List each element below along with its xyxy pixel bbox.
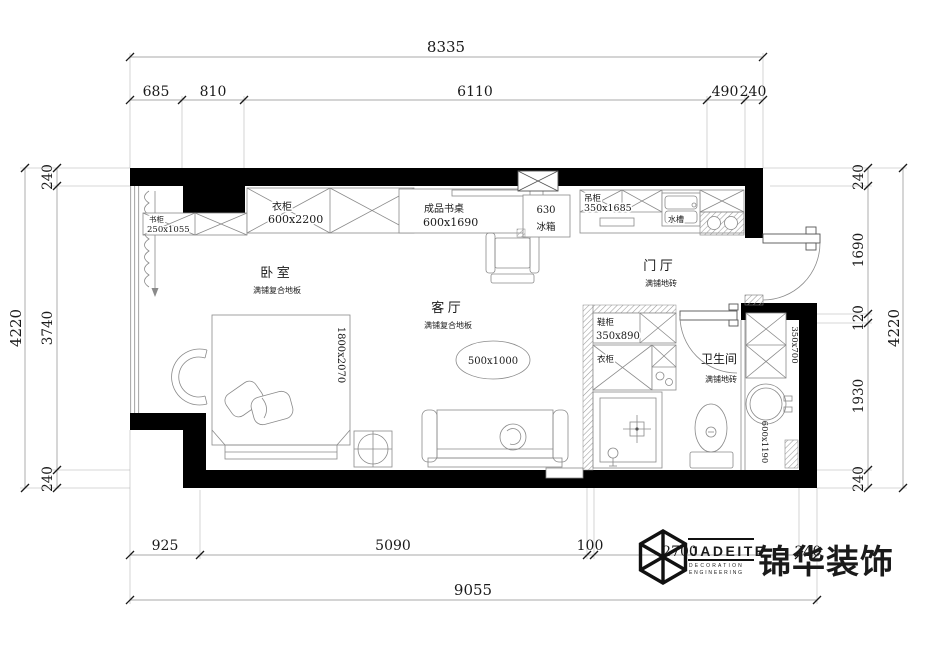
pillows bbox=[222, 378, 295, 427]
dim-right-total: 4220 bbox=[885, 309, 903, 347]
dim-left-3740: 3740 bbox=[40, 311, 56, 345]
partition-hatch bbox=[583, 305, 593, 470]
foyer-floor: 满铺地砖 bbox=[645, 278, 677, 288]
coffee-table-size: 500x1000 bbox=[468, 356, 518, 367]
dim-top-240: 240 bbox=[740, 84, 767, 100]
armchair bbox=[172, 349, 207, 405]
partition-hatch-top bbox=[593, 305, 676, 313]
fridge-label: 冰箱 bbox=[536, 221, 555, 233]
laundry-unit bbox=[652, 345, 676, 390]
curtain-arrow bbox=[152, 288, 159, 297]
dimension-bottom: 925 5090 100 2700 240 9055 bbox=[126, 430, 821, 604]
dim-top-490: 490 bbox=[712, 84, 739, 100]
logo-company: 锦华装饰 bbox=[758, 543, 894, 580]
living-room-floor: 满铺复合地板 bbox=[424, 320, 472, 330]
shower bbox=[593, 392, 662, 468]
dimension-top: 8335 685 810 6110 490 240 bbox=[126, 38, 767, 168]
shoe-cabinet-label: 鞋柜 bbox=[597, 317, 615, 327]
dim-bottom-100: 100 bbox=[577, 538, 604, 554]
bathroom-floor: 满铺地砖 bbox=[705, 374, 737, 384]
dim-bottom-925: 925 bbox=[152, 538, 179, 554]
foyer-wardrobe: 衣柜 bbox=[593, 345, 652, 390]
kitchen-counter: 吊柜 350x1685 水槽 bbox=[580, 190, 744, 235]
logo-line2: ENGINEERING bbox=[689, 570, 744, 576]
curtain-symbol bbox=[145, 191, 150, 287]
fridge: 630 冰箱 bbox=[517, 195, 570, 237]
bath-cabinet: 350x700 bbox=[746, 313, 799, 378]
foyer-title: 门 厅 bbox=[643, 258, 673, 273]
bed: 1800x2070 bbox=[212, 315, 350, 459]
logo-brand: JADEITE bbox=[690, 543, 767, 559]
desk-chair bbox=[486, 233, 539, 283]
kitchen-sink-label: 水槽 bbox=[668, 214, 684, 224]
dim-left-240b: 240 bbox=[40, 466, 56, 492]
bath-small-cabinet bbox=[785, 440, 798, 468]
dim-top-total: 8335 bbox=[427, 38, 465, 56]
vanity-column: 350x700 600x1190 bbox=[741, 313, 799, 470]
bookcase-label: 书柜 bbox=[149, 214, 164, 224]
shower-head bbox=[608, 448, 618, 458]
dim-left-240a: 240 bbox=[40, 164, 56, 190]
bedroom-floor: 满铺复合地板 bbox=[253, 285, 301, 295]
dim-right-240a: 240 bbox=[851, 164, 867, 190]
bedroom-wardrobe-size: 600x2200 bbox=[268, 213, 323, 226]
side-table bbox=[354, 431, 392, 467]
dim-right-240b: 240 bbox=[851, 466, 867, 492]
bottom-window bbox=[546, 468, 583, 478]
dimension-left: 4220 240 3740 240 bbox=[7, 164, 130, 492]
dim-right-120: 120 bbox=[851, 305, 867, 331]
shoe-cabinet: 鞋柜 350x890 bbox=[593, 313, 676, 343]
sofa-cushion bbox=[500, 424, 526, 450]
bedroom-wardrobe: 衣柜 600x2200 bbox=[247, 188, 414, 233]
logo-line1: DECORATION bbox=[689, 563, 744, 569]
floor-plan-drawing: 8335 685 810 6110 490 240 4220 240 3740 … bbox=[0, 0, 940, 657]
vanity-counter-size: 600x1190 bbox=[759, 421, 769, 464]
desk-label: 成品书桌 bbox=[424, 202, 464, 215]
shoe-cabinet-size: 350x890 bbox=[596, 331, 640, 342]
hanging-cabinet-size: 350x1685 bbox=[584, 203, 632, 214]
dim-right-1930: 1930 bbox=[851, 379, 867, 413]
basin bbox=[746, 384, 792, 424]
bed-size: 1800x2070 bbox=[335, 327, 346, 384]
entry-pier-hatch bbox=[745, 295, 763, 305]
dim-bottom-5090: 5090 bbox=[375, 538, 411, 554]
dim-top-6110: 6110 bbox=[457, 84, 493, 100]
bookcase: 书柜 250x1055 bbox=[143, 213, 247, 235]
bedroom-title: 卧 室 bbox=[260, 265, 290, 280]
dim-left-total: 4220 bbox=[7, 309, 25, 347]
floor-plan-page: 8335 685 810 6110 490 240 4220 240 3740 … bbox=[0, 0, 940, 657]
dim-right-1690: 1690 bbox=[851, 233, 867, 267]
desk-size: 600x1690 bbox=[423, 216, 478, 229]
bath-cabinet-size: 350x700 bbox=[789, 326, 799, 363]
bedroom-wardrobe-label: 衣柜 bbox=[272, 200, 292, 213]
sofa bbox=[422, 410, 568, 467]
hanging-cabinet-label: 吊柜 bbox=[584, 193, 602, 203]
stove bbox=[700, 212, 744, 235]
living-room-title: 客 厅 bbox=[431, 300, 461, 315]
toilet bbox=[690, 404, 733, 468]
coffee-table: 500x1000 bbox=[456, 341, 530, 379]
dim-bottom-total: 9055 bbox=[454, 581, 492, 599]
dim-top-810: 810 bbox=[200, 84, 227, 100]
dim-top-685: 685 bbox=[143, 84, 170, 100]
foyer-wardrobe-label: 衣柜 bbox=[597, 354, 615, 364]
bookcase-size: 250x1055 bbox=[147, 225, 190, 235]
entry-door bbox=[763, 227, 820, 300]
fridge-size: 630 bbox=[536, 205, 555, 216]
